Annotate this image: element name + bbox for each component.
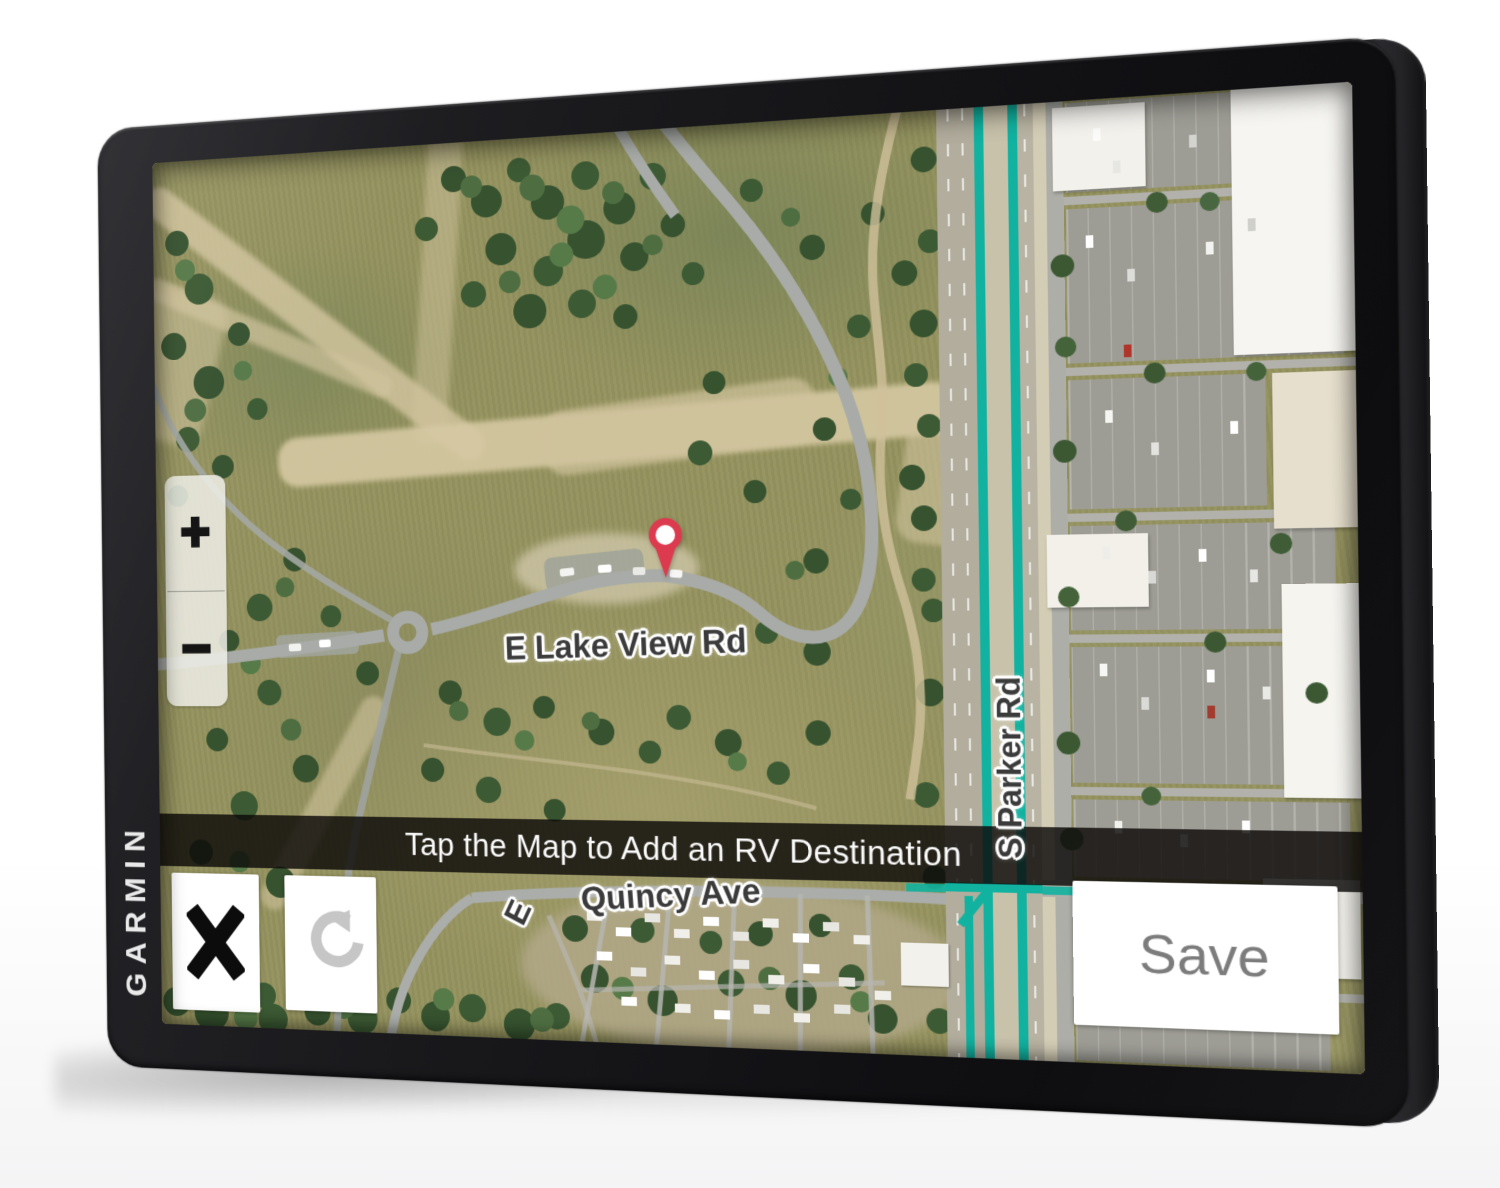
zoom-out-button[interactable]: − xyxy=(166,591,228,706)
undo-icon xyxy=(296,907,365,982)
road-label-parker: S Parker Rd xyxy=(990,677,1030,859)
undo-button[interactable] xyxy=(284,875,377,1013)
zoom-control: + − xyxy=(164,475,227,707)
building xyxy=(1047,533,1149,608)
parking-lot xyxy=(1068,373,1267,509)
building xyxy=(1230,82,1355,356)
garmin-device: GARMIN xyxy=(97,33,1439,1130)
instruction-text: Tap the Map to Add an RV Destination xyxy=(405,826,962,874)
map-screen[interactable]: E Lake View Rd S Parker Rd Quincy Ave E … xyxy=(152,82,1365,1075)
trailer-homes xyxy=(152,162,166,171)
building xyxy=(1272,370,1358,529)
plus-icon: + xyxy=(180,505,210,560)
trailer-park-building xyxy=(901,942,949,987)
minus-icon: − xyxy=(182,621,212,676)
route-highlight-arm xyxy=(906,883,945,892)
garmin-brand-logo: GARMIN xyxy=(118,778,155,1040)
road-label-quincy: Quincy Ave xyxy=(579,872,762,919)
save-label: Save xyxy=(1138,923,1270,990)
building xyxy=(1282,583,1362,798)
building xyxy=(1052,102,1146,191)
cancel-button[interactable] xyxy=(171,873,260,1013)
save-button[interactable]: Save xyxy=(1072,881,1339,1035)
device-bezel: GARMIN xyxy=(97,35,1409,1128)
x-icon xyxy=(187,902,245,983)
road-label-lake-view: E Lake View Rd xyxy=(504,622,747,668)
zoom-in-button[interactable]: + xyxy=(164,475,226,591)
